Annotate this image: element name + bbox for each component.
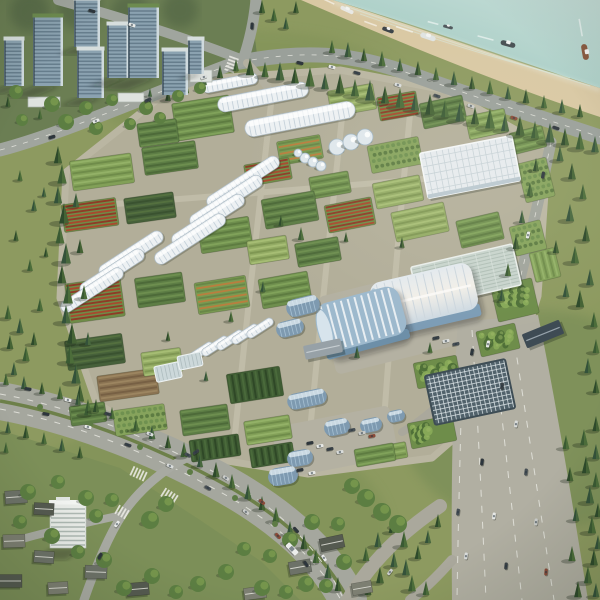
light-overlays (0, 0, 600, 600)
aerial-farm-illustration (0, 0, 600, 600)
vignette (0, 0, 600, 600)
aerial-farm-scene (0, 0, 600, 600)
